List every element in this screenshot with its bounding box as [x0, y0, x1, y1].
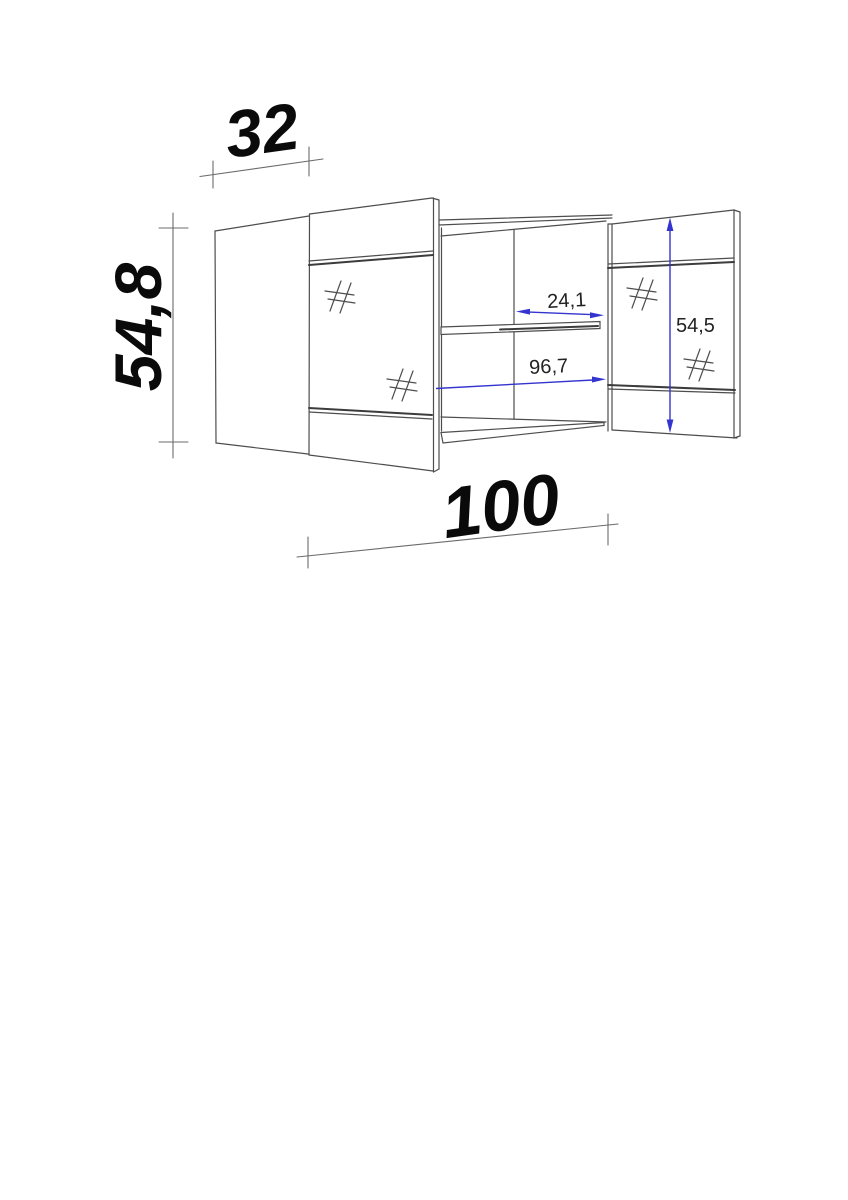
height-dimension-label: 54,8 [101, 262, 175, 391]
dimension-width: 100 [297, 459, 618, 568]
drawing-page: 32 54,8 100 [0, 0, 848, 1200]
shelf [441, 322, 600, 335]
depth-dimension-label: 32 [220, 88, 303, 172]
compartment-width-label: 24,1 [547, 289, 587, 313]
width-dimension-label: 100 [437, 459, 565, 554]
dimension-inner-width: 96,7 [436, 355, 606, 388]
cabinet-dimension-drawing: 32 54,8 100 [0, 0, 848, 1200]
dimension-height: 54,8 [101, 213, 188, 458]
door-height-label: 54,5 [676, 315, 715, 337]
dimension-depth: 32 [200, 88, 323, 188]
right-door [608, 210, 740, 438]
left-door [309, 198, 439, 472]
inner-width-label: 96,7 [529, 355, 569, 379]
bottom-panel-edge [441, 423, 604, 444]
carcass-interior [439, 215, 612, 443]
dimension-compartment-width: 24,1 [516, 289, 604, 318]
left-side-panel [215, 216, 309, 454]
dimension-door-height: 54,5 [667, 218, 715, 434]
